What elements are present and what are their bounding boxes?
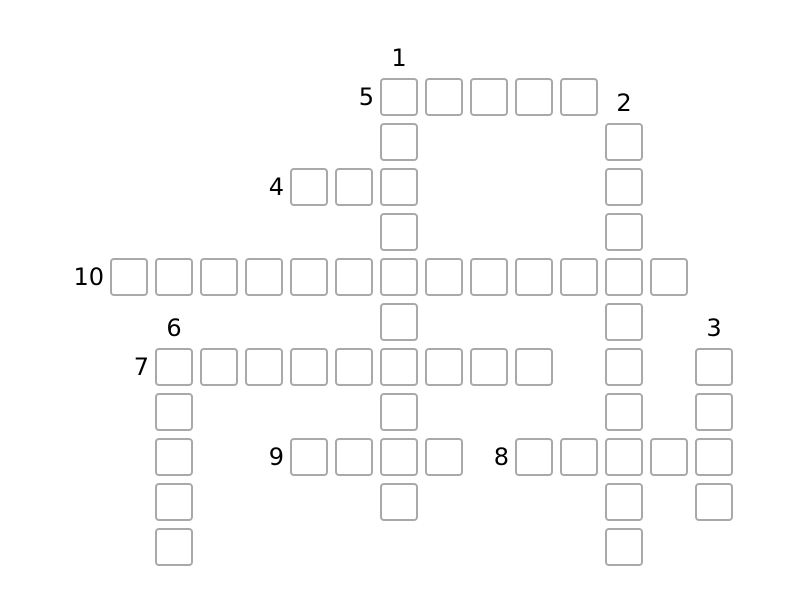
crossword-cell[interactable] (695, 483, 733, 521)
crossword-cell[interactable] (695, 393, 733, 431)
crossword-cell[interactable] (200, 258, 238, 296)
crossword-cell[interactable] (380, 168, 418, 206)
crossword-cell[interactable] (290, 348, 328, 386)
crossword-cell[interactable] (470, 258, 508, 296)
crossword-cell[interactable] (605, 303, 643, 341)
crossword-page: 12345678910 (0, 0, 800, 600)
crossword-cell[interactable] (380, 258, 418, 296)
crossword-cell[interactable] (605, 438, 643, 476)
crossword-cell[interactable] (155, 393, 193, 431)
crossword-cell[interactable] (605, 348, 643, 386)
crossword-cell[interactable] (605, 483, 643, 521)
clue-number-1: 1 (380, 44, 418, 70)
crossword-cell[interactable] (560, 438, 598, 476)
crossword-grid: 12345678910 (0, 0, 800, 600)
crossword-cell[interactable] (380, 123, 418, 161)
crossword-cell[interactable] (560, 258, 598, 296)
clue-number-2: 2 (605, 89, 643, 115)
crossword-cell[interactable] (380, 78, 418, 116)
crossword-cell[interactable] (335, 438, 373, 476)
crossword-cell[interactable] (380, 348, 418, 386)
crossword-cell[interactable] (335, 258, 373, 296)
crossword-cell[interactable] (605, 393, 643, 431)
clue-number-5: 5 (330, 78, 374, 116)
crossword-cell[interactable] (515, 438, 553, 476)
crossword-cell[interactable] (380, 438, 418, 476)
crossword-cell[interactable] (155, 483, 193, 521)
crossword-cell[interactable] (290, 438, 328, 476)
clue-number-9: 9 (240, 438, 284, 476)
crossword-cell[interactable] (515, 258, 553, 296)
crossword-cell[interactable] (470, 78, 508, 116)
crossword-cell[interactable] (335, 168, 373, 206)
crossword-cell[interactable] (335, 348, 373, 386)
crossword-cell[interactable] (515, 78, 553, 116)
crossword-cell[interactable] (650, 438, 688, 476)
clue-number-10: 10 (60, 258, 104, 296)
crossword-cell[interactable] (245, 348, 283, 386)
crossword-cell[interactable] (605, 258, 643, 296)
crossword-cell[interactable] (425, 78, 463, 116)
crossword-cell[interactable] (425, 258, 463, 296)
crossword-cell[interactable] (155, 258, 193, 296)
crossword-cell[interactable] (380, 213, 418, 251)
crossword-cell[interactable] (425, 438, 463, 476)
crossword-cell[interactable] (290, 168, 328, 206)
crossword-cell[interactable] (470, 348, 508, 386)
crossword-cell[interactable] (515, 348, 553, 386)
crossword-cell[interactable] (245, 258, 283, 296)
crossword-cell[interactable] (650, 258, 688, 296)
crossword-cell[interactable] (560, 78, 598, 116)
clue-number-4: 4 (240, 168, 284, 206)
crossword-cell[interactable] (155, 438, 193, 476)
crossword-cell[interactable] (695, 348, 733, 386)
crossword-cell[interactable] (605, 528, 643, 566)
crossword-cell[interactable] (605, 213, 643, 251)
clue-number-3: 3 (695, 314, 733, 340)
crossword-cell[interactable] (155, 348, 193, 386)
clue-number-6: 6 (155, 314, 193, 340)
clue-number-7: 7 (105, 348, 149, 386)
crossword-cell[interactable] (155, 528, 193, 566)
crossword-cell[interactable] (695, 438, 733, 476)
crossword-cell[interactable] (200, 348, 238, 386)
crossword-cell[interactable] (380, 303, 418, 341)
crossword-cell[interactable] (290, 258, 328, 296)
crossword-cell[interactable] (380, 393, 418, 431)
crossword-cell[interactable] (605, 168, 643, 206)
crossword-cell[interactable] (380, 483, 418, 521)
crossword-cell[interactable] (425, 348, 463, 386)
crossword-cell[interactable] (605, 123, 643, 161)
crossword-cell[interactable] (110, 258, 148, 296)
clue-number-8: 8 (465, 438, 509, 476)
